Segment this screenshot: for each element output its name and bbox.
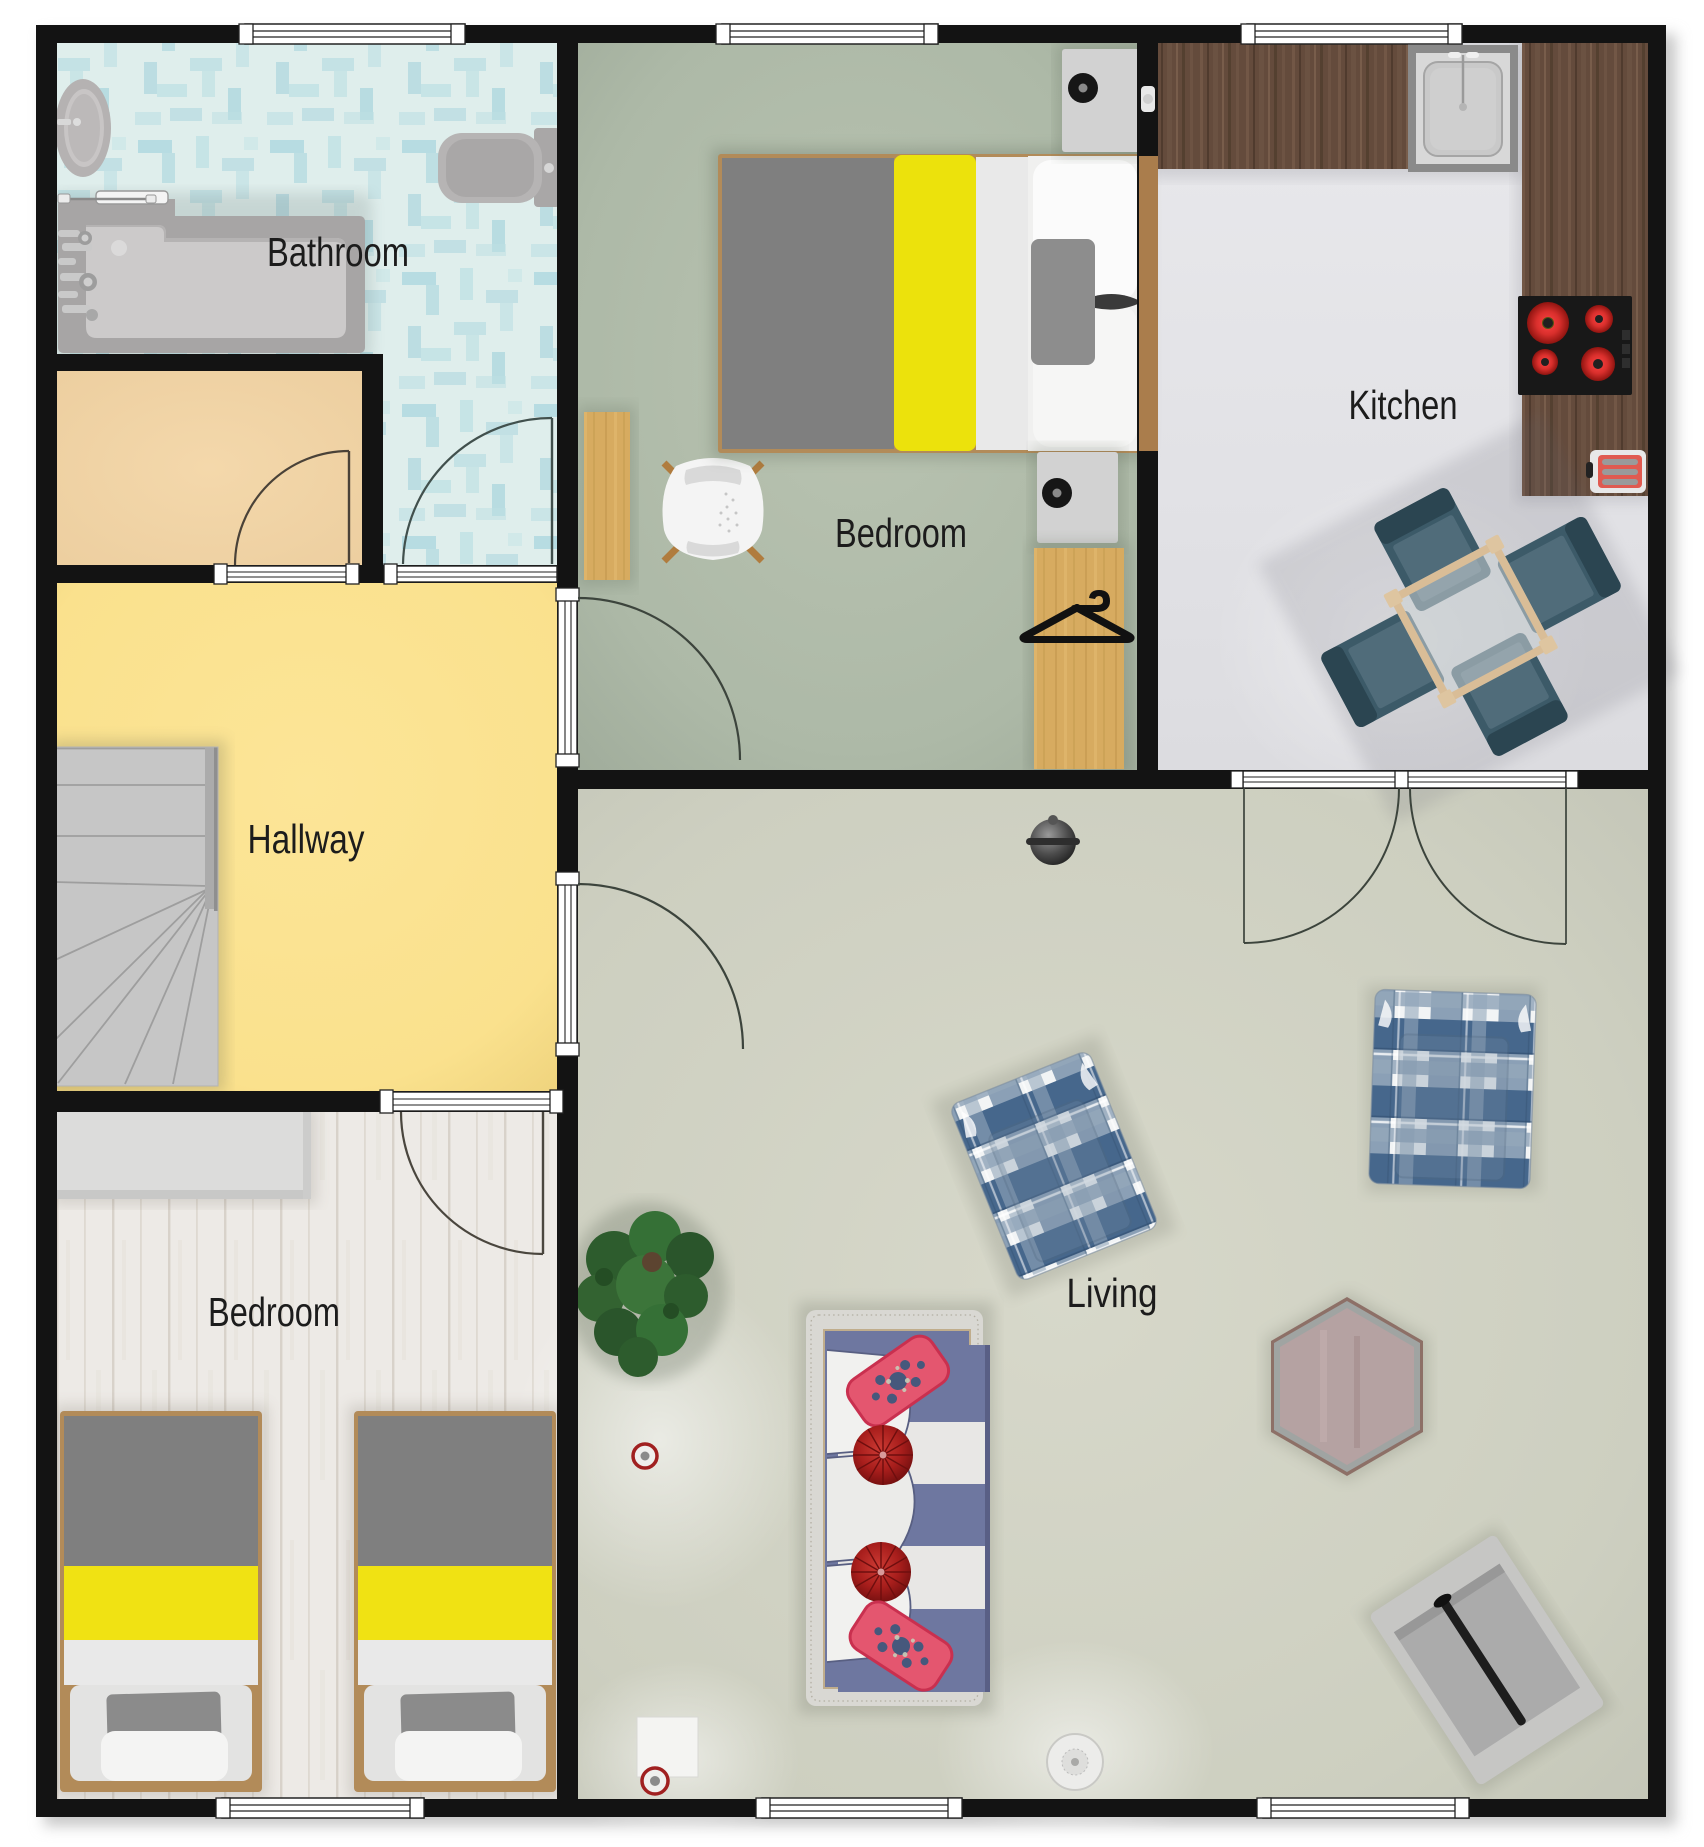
svg-text:Kitchen: Kitchen xyxy=(1349,382,1458,428)
svg-text:Hallway: Hallway xyxy=(248,816,365,862)
svg-text:Bedroom: Bedroom xyxy=(835,510,967,556)
svg-text:Bathroom: Bathroom xyxy=(267,229,409,275)
svg-text:Bedroom: Bedroom xyxy=(208,1289,340,1335)
svg-text:Living: Living xyxy=(1067,1270,1158,1316)
